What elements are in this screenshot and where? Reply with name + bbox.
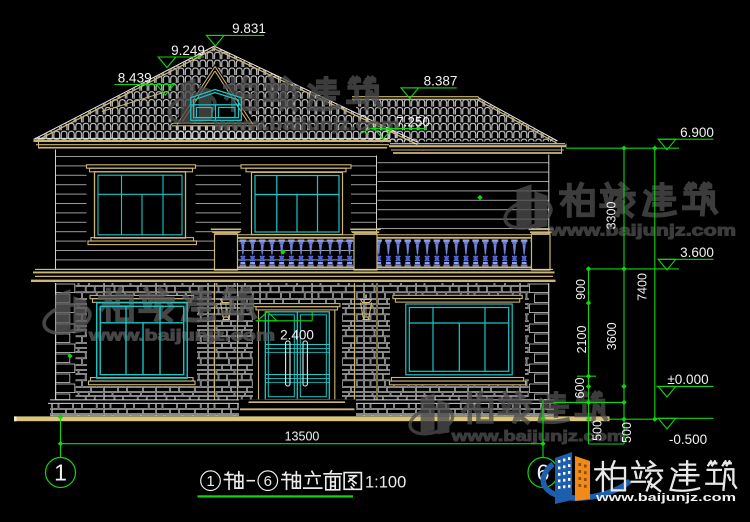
svg-text:1: 1 xyxy=(54,460,67,486)
svg-text:7.250: 7.250 xyxy=(396,114,430,129)
svg-text:600: 600 xyxy=(573,378,587,399)
svg-text:7400: 7400 xyxy=(636,273,650,301)
svg-text:www.baijunjz.com: www.baijunjz.com xyxy=(595,492,737,504)
svg-text:13500: 13500 xyxy=(285,430,320,444)
svg-text:8.387: 8.387 xyxy=(424,74,458,89)
svg-text:±0.000: ±0.000 xyxy=(667,372,708,387)
svg-text:500: 500 xyxy=(591,420,605,441)
svg-text:3.600: 3.600 xyxy=(680,245,714,260)
svg-text:3300: 3300 xyxy=(605,202,619,230)
svg-text:3600: 3600 xyxy=(605,322,619,350)
svg-text:900: 900 xyxy=(574,279,588,300)
svg-text:1:100: 1:100 xyxy=(365,474,406,492)
svg-text:9.831: 9.831 xyxy=(232,21,266,36)
svg-text:2100: 2100 xyxy=(575,326,589,354)
svg-text:500: 500 xyxy=(620,422,634,443)
svg-text:8.439: 8.439 xyxy=(118,70,152,85)
svg-text:6.900: 6.900 xyxy=(680,125,714,140)
svg-text:9.249: 9.249 xyxy=(171,43,205,58)
svg-text:2.400: 2.400 xyxy=(280,328,314,343)
svg-text:-0.500: -0.500 xyxy=(669,432,707,447)
svg-text:1: 1 xyxy=(206,473,214,490)
svg-text:6: 6 xyxy=(264,473,272,490)
